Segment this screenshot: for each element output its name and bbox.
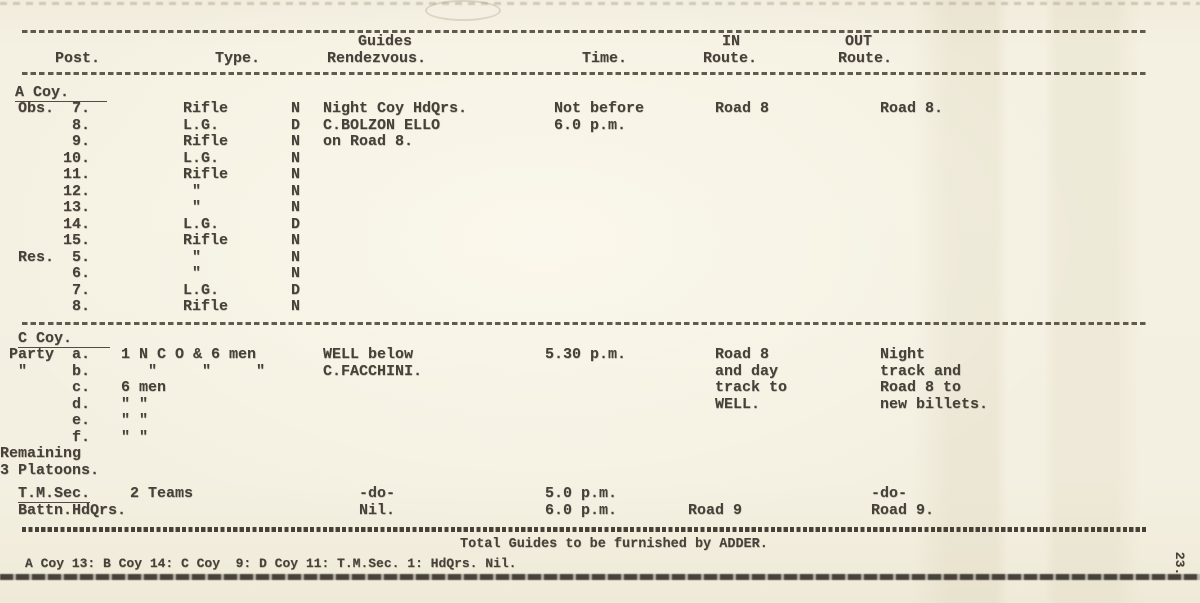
cell-type: L.G. [121, 151, 288, 168]
cell-type: " " [121, 397, 288, 414]
cell-type: 1 N C O & 6 men [121, 347, 288, 364]
cell-out: Road 9. [871, 503, 1171, 520]
cell-post: 8. [0, 299, 121, 316]
cell-post: 7. [0, 283, 121, 300]
cell-guide: N [288, 167, 323, 184]
section-c-coy: C Coy. Party a.1 N C O & 6 menWELL below… [0, 330, 1200, 479]
cell-in: and day [688, 364, 871, 381]
cell-rdv: C.FACCHINI. [323, 364, 545, 381]
table-row: 8.RifleN [0, 299, 1200, 316]
cell-post: Battn.HdQrs. [0, 503, 121, 520]
cell-type: " [121, 250, 288, 267]
cell-post: 6. [0, 266, 121, 283]
cell-type: L.G. [121, 283, 288, 300]
header-out: OUT [845, 34, 872, 50]
table-row: T.M.Sec. 2 Teams -do-5.0 p.m.-do- [0, 486, 1200, 503]
cell-post: c. [0, 380, 121, 397]
cell-guide: N [288, 151, 323, 168]
cell-guide: D [288, 283, 323, 300]
table-row: Battn.HdQrs. Nil.6.0 p.m.Road 9Road 9. [0, 503, 1200, 520]
page-number: 23. [1172, 552, 1187, 575]
cell-in: Road 9 [688, 503, 871, 520]
cell-guide: N [288, 233, 323, 250]
cell-type: " " " [121, 364, 288, 381]
cell-type: " " [121, 430, 288, 447]
cell-type: 6 men [121, 380, 288, 397]
scan-artifact-smudge [0, 2, 1200, 5]
cell-rdv: -do- [323, 486, 545, 503]
dashed-rule-bottom [22, 527, 1148, 532]
post-label: T.M.Sec. [18, 485, 90, 503]
cell-post: " b. [0, 364, 121, 381]
cell-time: 6.0 p.m. [545, 118, 688, 135]
cell-post: e. [0, 413, 121, 430]
cell-post: Res. 5. [0, 250, 121, 267]
cell-rdv: Nil. [323, 503, 545, 520]
cell-post: 13. [0, 200, 121, 217]
cell-in: WELL. [688, 397, 871, 414]
section-title-row: A Coy. [15, 84, 1200, 101]
total-guides-line: Total Guides to be furnished by ADDER. [460, 537, 768, 552]
table-row: Remaining [0, 446, 1200, 463]
section-tm: T.M.Sec. 2 Teams -do-5.0 p.m.-do- Battn.… [0, 486, 1200, 519]
cell-out: Road 8. [871, 101, 1171, 118]
cell-guide: N [288, 184, 323, 201]
table-row: 15.RifleN [0, 233, 1200, 250]
table-row: 11.RifleN [0, 167, 1200, 184]
cell-type: " [121, 184, 288, 201]
section-a-coy: A Coy. Obs. 7.RifleNNight Coy HdQrs. Not… [0, 84, 1200, 316]
cell-in: Road 8 [688, 101, 871, 118]
scan-artifact-oval [425, 0, 501, 21]
cell-out: Road 8 to [871, 380, 1171, 397]
cell-type: Rifle [121, 299, 288, 316]
cell-post: Obs. 7. [0, 101, 121, 118]
table-row: 6. "N [0, 266, 1200, 283]
table-row: 3 Platoons. [0, 463, 1200, 480]
table-row: 9.RifleNon Road 8. [0, 134, 1200, 151]
cell-guide: N [288, 266, 323, 283]
post-label: Battn.HdQrs. [18, 502, 126, 519]
header-rendezvous: Rendezvous. [327, 51, 426, 67]
cell-type: " " [121, 413, 288, 430]
cell-in: Road 8 [688, 347, 871, 364]
table-row: 14.L.G.D [0, 217, 1200, 234]
cell-type: Rifle [121, 101, 288, 118]
table-row: 12. "N [0, 184, 1200, 201]
cell-type: L.G. [121, 118, 288, 135]
cell-post: f. [0, 430, 121, 447]
cell-post: d. [0, 397, 121, 414]
table-row: c.6 men track to Road 8 to [0, 380, 1200, 397]
table-row: Party a.1 N C O & 6 menWELL below5.30 p.… [0, 347, 1200, 364]
cell-time: 5.30 p.m. [545, 347, 688, 364]
dashed-rule-header [22, 72, 1148, 75]
cell-post: 8. [0, 118, 121, 135]
header-post: Post. [55, 51, 100, 67]
cell-guide: D [288, 118, 323, 135]
cell-guide: N [288, 200, 323, 217]
cell-time: 5.0 p.m. [545, 486, 688, 503]
cell-out: track and [871, 364, 1171, 381]
cell-rdv: on Road 8. [323, 134, 545, 151]
scanned-document-page: Guides IN OUT Post. Type. Rendezvous. Ti… [0, 0, 1200, 603]
cell-out: -do- [871, 486, 1171, 503]
section-title-row: C Coy. [18, 330, 1200, 347]
header-in-route: Route. [703, 51, 757, 67]
dashed-rule-top [22, 30, 1148, 33]
cell-post: 14. [0, 217, 121, 234]
cutoff-dashed-band [0, 574, 1200, 580]
cell-guide: N [288, 250, 323, 267]
table-row: d." " WELL. new billets. [0, 397, 1200, 414]
cell-rdv: Night Coy HdQrs. [323, 101, 545, 118]
cell-type: Rifle [121, 134, 288, 151]
dashed-rule-acoy-end [22, 322, 1148, 325]
cell-time: 6.0 p.m. [545, 503, 688, 520]
cell-type: Rifle [121, 167, 288, 184]
table-row: 13. "N [0, 200, 1200, 217]
table-row: 10.L.G.N [0, 151, 1200, 168]
table-row: 7.L.G.D [0, 283, 1200, 300]
table-row: Obs. 7.RifleNNight Coy HdQrs. Not before… [0, 101, 1200, 118]
cell-type: " [121, 200, 288, 217]
table-row: Res. 5. "N [0, 250, 1200, 267]
table-row: e." " [0, 413, 1200, 430]
header-guides: Guides [358, 34, 412, 50]
cell-post: T.M.Sec. [0, 486, 121, 503]
cell-post: 12. [0, 184, 121, 201]
cell-type: L.G. [121, 217, 288, 234]
header-type: Type. [215, 51, 260, 67]
cell-rdv: WELL below [323, 347, 545, 364]
cell-out: new billets. [871, 397, 1171, 414]
table-row: " b. " " "C.FACCHINI. and day track and [0, 364, 1200, 381]
post-indent [0, 502, 18, 519]
cell-guide: N [288, 134, 323, 151]
cell-post: 11. [0, 167, 121, 184]
table-row: 8.L.G.DC.BOLZON ELLO 6.0 p.m. [0, 118, 1200, 135]
cell-time: Not before [545, 101, 688, 118]
cell-guide: N [288, 101, 323, 118]
cell-rdv: C.BOLZON ELLO [323, 118, 545, 135]
cell-in: track to [688, 380, 871, 397]
guides-tally-line: A Coy 13: B Coy 14: C Coy 9: D Coy 11: T… [25, 556, 516, 571]
header-time: Time. [582, 51, 627, 67]
cell-guide: D [288, 217, 323, 234]
table-row: f." " [0, 430, 1200, 447]
cell-type: " [121, 266, 288, 283]
cell-post: 10. [0, 151, 121, 168]
header-out-route: Route. [838, 51, 892, 67]
cell-guide: N [288, 299, 323, 316]
cell-post: 9. [0, 134, 121, 151]
cell-post: Party a. [0, 347, 121, 364]
cell-type: Rifle [121, 233, 288, 250]
cell-post: 15. [0, 233, 121, 250]
cell-out: Night [871, 347, 1171, 364]
post-indent [0, 485, 18, 502]
cell-post: 3 Platoons. [0, 463, 121, 480]
cell-type: 2 Teams [121, 486, 288, 503]
header-in: IN [722, 34, 740, 50]
cell-post: Remaining [0, 446, 121, 463]
